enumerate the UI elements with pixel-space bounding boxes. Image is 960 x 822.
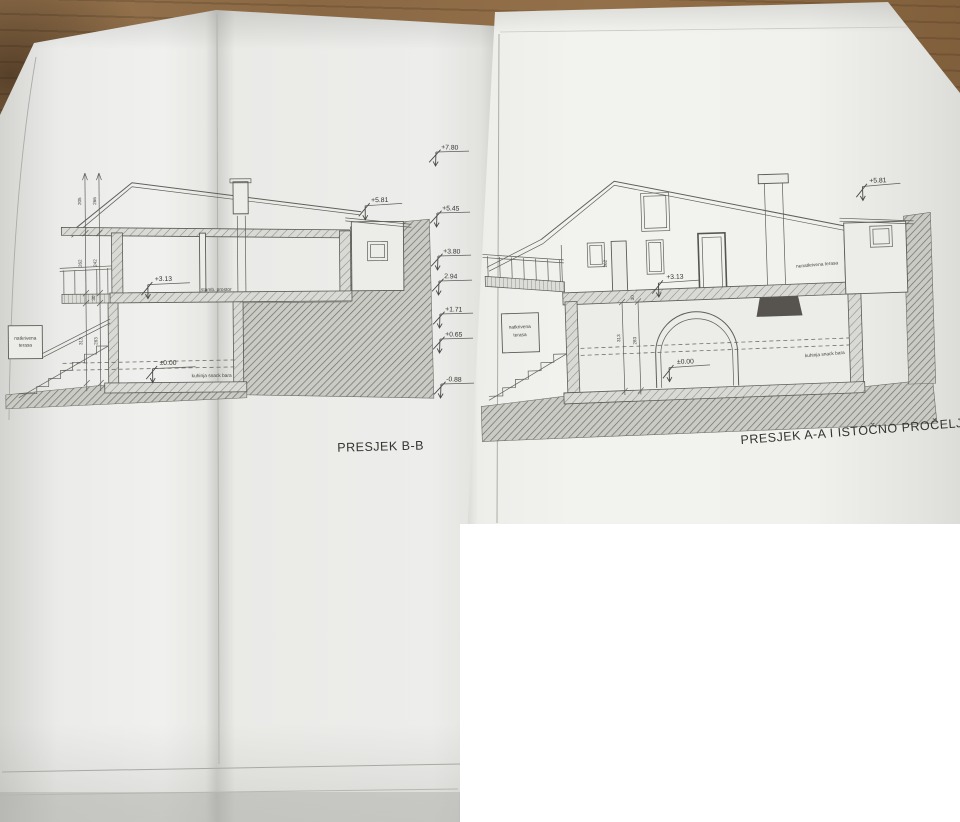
elevation-value: +0.65: [445, 331, 463, 339]
annex-room: [351, 221, 404, 290]
lower-left-wall: [108, 303, 119, 383]
elevation-scale-column: +7.80 +5.45 +3.80 2.94 +1.71 +0.65 -0.88: [429, 144, 474, 399]
ground-slab: [105, 382, 247, 393]
dim-lower-outer: 313: [78, 337, 83, 345]
white-cover-rectangle: [460, 524, 960, 822]
dim-roof-outer: 205: [77, 197, 82, 205]
lower-right-wall: [233, 302, 244, 382]
dashed-level-line: [63, 367, 238, 371]
level-marker-ground: ±0.00: [146, 360, 196, 383]
flue-line-right: [245, 216, 246, 292]
dim-lower-outer: 313: [616, 334, 621, 342]
section-b-b-drawing: natkrivena terasa +5.81 +3.13 stamb. pro…: [4, 170, 434, 457]
roof-inner-line: [541, 178, 852, 244]
stairs-stringer: [488, 354, 568, 400]
chimney-flue: [764, 184, 768, 297]
dim-lower-inner: 283: [93, 337, 98, 345]
chimney-flue: [782, 183, 786, 296]
facade-door-inner: [702, 237, 723, 290]
room-label-upper: stamb. prostor: [201, 287, 232, 293]
dim-upper-outer: 262: [78, 259, 83, 267]
elevation-marker: +5.45: [430, 205, 470, 228]
dashed-level-line: [63, 360, 238, 364]
elevation-marker: +7.80: [429, 144, 469, 167]
level-marker-annex: +5.81: [359, 197, 403, 220]
elevation-marker: 2.94: [432, 273, 472, 296]
elevation-marker: +3.80: [431, 248, 471, 271]
level-value: +5.81: [371, 197, 388, 204]
roof-outline: [69, 181, 361, 234]
elevation-value: -0.88: [446, 376, 462, 384]
terrace-roof-line: [486, 240, 542, 268]
upper-right-wall: [339, 231, 351, 292]
level-value: ±0.00: [160, 360, 177, 367]
chimney: [233, 182, 248, 214]
gable-window: [641, 193, 670, 232]
terrain-hatch-right: [242, 219, 434, 400]
section-post: [611, 241, 628, 292]
fireplace-hearth: [756, 295, 803, 316]
elevation-marker: +1.71: [433, 306, 473, 329]
elevation-value: +7.80: [441, 144, 459, 152]
elevation-marker: +0.65: [433, 331, 473, 354]
level-value: +3.13: [155, 276, 172, 283]
terrace-slab: [485, 274, 565, 294]
dim-lower-inner: 283: [632, 336, 637, 344]
terrace-label-line2: terasa: [19, 343, 33, 349]
lower-left-wall: [565, 301, 580, 392]
elevation-value: +1.71: [445, 306, 463, 314]
interior-column: [199, 233, 206, 292]
dim-upper-inner: 242: [93, 259, 98, 267]
room-label-upper-terrace: nenatkrivena terasa: [796, 260, 839, 270]
elevation-value: +3.80: [443, 248, 461, 256]
gable-window-inner: [644, 196, 667, 229]
lower-right-wall: [848, 294, 864, 384]
roof-outline: [539, 174, 854, 240]
level-value: ±0.00: [677, 358, 694, 366]
dim-roof-inner: 266: [92, 197, 97, 205]
elevation-marker: -0.88: [434, 376, 474, 399]
terrace-label-line2: terasa: [513, 332, 527, 338]
chimney-cap: [758, 174, 788, 184]
annex-room: [844, 221, 908, 294]
elevation-value: 2.94: [444, 273, 458, 280]
level-value: +3.13: [666, 274, 684, 282]
facade-window-1-inner: [590, 245, 603, 264]
section-b-b-title: PRESJEK B-B: [337, 438, 424, 454]
facade-window-2-inner: [649, 242, 662, 271]
flue-line-left: [237, 216, 238, 292]
section-a-a-drawing: 262 natkrivena terasa: [474, 168, 960, 455]
terrace-label-box: [8, 326, 42, 359]
upper-left-wall: [111, 233, 123, 294]
elevation-value: +5.45: [442, 205, 460, 213]
terrace-label-line1: natkrivena: [14, 336, 37, 342]
level-value: +5.81: [869, 177, 887, 185]
dim-slab: 30: [91, 295, 96, 301]
terrace-label-line1: natkrivena: [509, 324, 532, 331]
terrain-hatch-right: [903, 212, 935, 384]
level-marker-annex: +5.81: [856, 177, 901, 201]
dim-post: 262: [603, 259, 608, 267]
photo-of-architectural-drawings: natkrivena terasa +5.81 +3.13 stamb. pro…: [0, 0, 960, 822]
room-label-ground: kuhinja snack bara: [192, 373, 232, 379]
dim-slab: 30: [630, 295, 635, 301]
